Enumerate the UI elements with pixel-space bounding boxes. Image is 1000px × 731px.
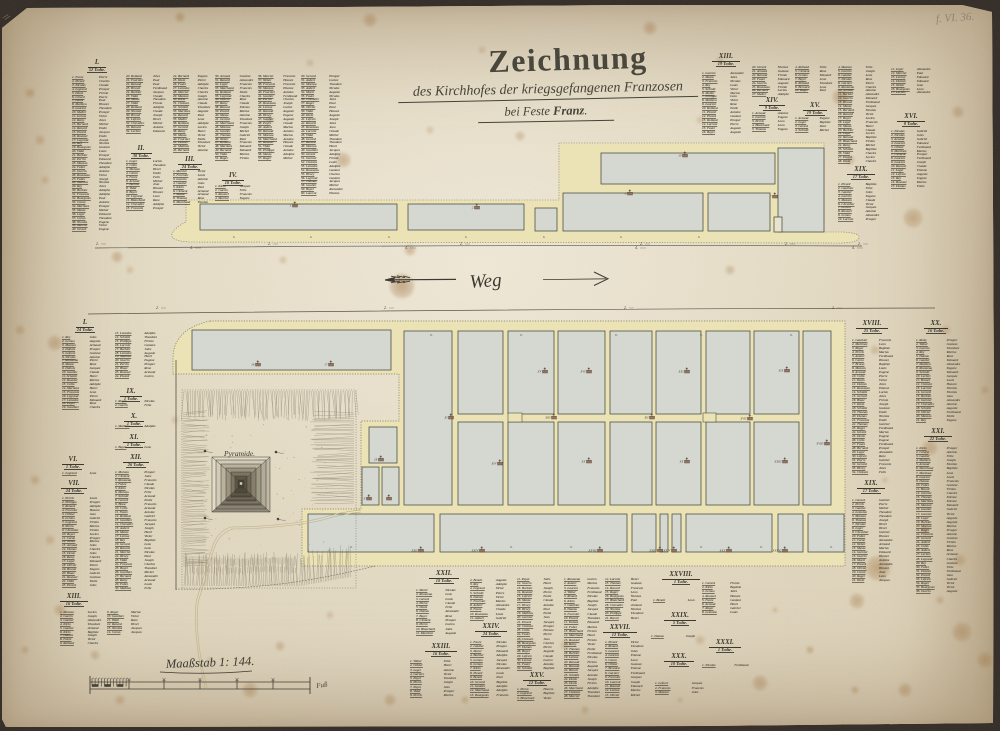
svg-text:2.: 2. (832, 306, 835, 310)
svg-text:2.: 2. (858, 242, 861, 246)
svg-text:9.: 9. (520, 333, 523, 337)
svg-text:2.: 2. (96, 242, 99, 246)
svg-text:9.: 9. (615, 333, 618, 337)
svg-text:4.: 4. (852, 246, 855, 250)
svg-text:9.: 9. (790, 333, 793, 337)
svg-text:XVI: XVI (579, 369, 586, 373)
svg-text:XXXVI: XXXVI (772, 548, 783, 552)
svg-text:6.: 6. (698, 235, 701, 239)
svg-text:2.: 2. (460, 242, 463, 246)
svg-text:Weg: Weg (469, 270, 502, 293)
svg-text:XVIII: XVIII (815, 441, 824, 445)
svg-text:4.: 4. (405, 246, 408, 250)
svg-text:6.: 6. (310, 235, 313, 239)
svg-text:6.: 6. (543, 235, 546, 239)
svg-text:9.: 9. (430, 333, 433, 337)
svg-text:XXIV: XXIV (470, 548, 479, 552)
svg-text:2.: 2. (384, 306, 387, 310)
svg-text:4.: 4. (190, 246, 193, 250)
svg-text:9.: 9. (700, 545, 703, 549)
svg-text:XIII: XIII (544, 415, 551, 419)
svg-text:17: 17 (324, 362, 328, 366)
svg-text:6.: 6. (620, 235, 623, 239)
svg-text:Pyramide.: Pyramide. (223, 449, 255, 458)
svg-text:9.: 9. (700, 333, 703, 337)
svg-text:6.: 6. (465, 235, 468, 239)
svg-text:6.: 6. (233, 235, 236, 239)
svg-text:4.: 4. (635, 246, 638, 250)
svg-text:6.: 6. (388, 235, 391, 239)
svg-text:9.: 9. (510, 545, 513, 549)
svg-text:2.: 2. (640, 242, 643, 246)
svg-text:10: 10 (678, 153, 682, 157)
svg-text:9.: 9. (760, 545, 763, 549)
svg-text:XXII: XXII (410, 548, 418, 552)
svg-text:9.: 9. (570, 545, 573, 549)
svg-text:XXVII: XXVII (587, 548, 597, 552)
svg-text:16: 16 (251, 362, 255, 366)
svg-text:2.: 2. (268, 242, 271, 246)
svg-text:2.: 2. (624, 306, 627, 310)
svg-text:9.: 9. (350, 545, 353, 549)
svg-text:9.: 9. (830, 545, 833, 549)
svg-text:XXI: XXI (677, 369, 684, 373)
svg-text:XXIII: XXIII (773, 459, 782, 463)
svg-text:XXXIV: XXXIV (661, 548, 672, 552)
svg-text:XXX: XXX (719, 548, 727, 552)
svg-text:XXIII: XXIII (648, 548, 657, 552)
svg-text:2.: 2. (156, 306, 159, 310)
svg-text:XIV: XIV (490, 461, 497, 465)
svg-text:2.: 2. (785, 242, 788, 246)
svg-text:XIX: XIX (777, 368, 784, 372)
svg-text:XVII: XVII (739, 416, 747, 420)
